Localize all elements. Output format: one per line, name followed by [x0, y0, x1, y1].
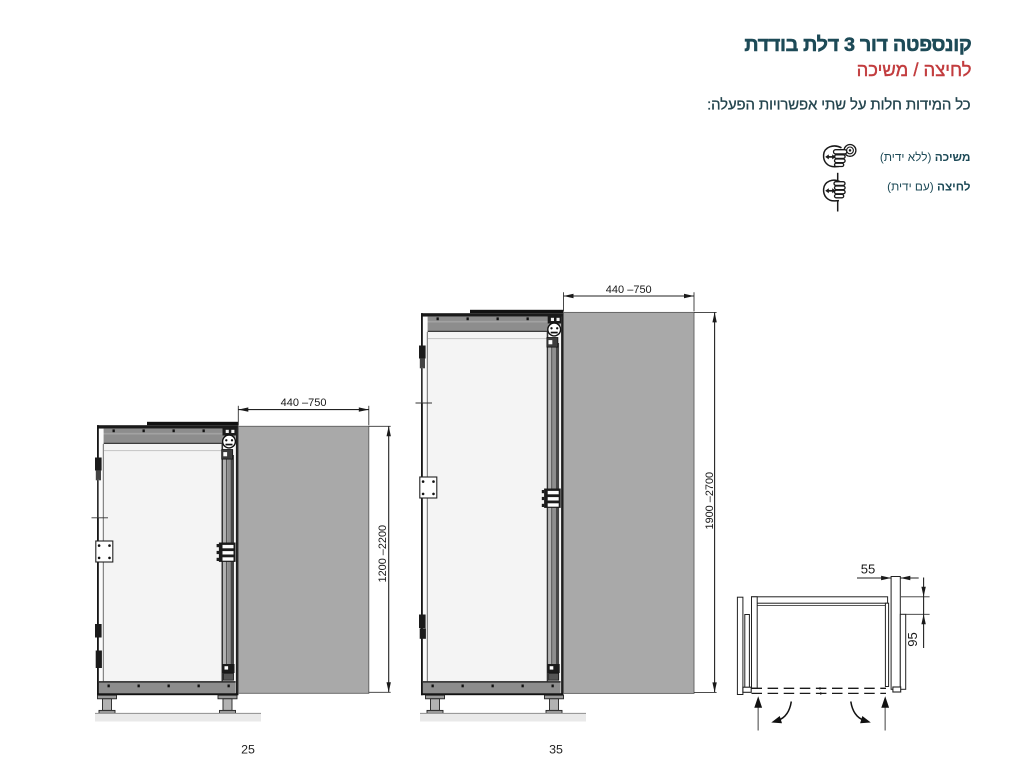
svg-text:440 –750: 440 –750	[281, 397, 327, 409]
svg-text:55: 55	[861, 562, 876, 577]
svg-text:1900 –2700: 1900 –2700	[704, 472, 716, 530]
svg-text:25: 25	[241, 743, 255, 757]
svg-text:קונספטה דור 3 דלת בודדת: קונספטה דור 3 דלת בודדת	[744, 34, 971, 56]
svg-text:35: 35	[549, 743, 563, 757]
svg-text:משיכה (ללא ידית): משיכה (ללא ידית)	[880, 150, 971, 164]
svg-text:לחיצה (עם ידית): לחיצה (עם ידית)	[887, 179, 971, 193]
svg-text:לחיצה / משיכה: לחיצה / משיכה	[857, 59, 972, 80]
svg-text:כל המידות חלות על שתי אפשרויות: כל המידות חלות על שתי אפשרויות הפעלה:	[707, 97, 970, 114]
svg-text:95: 95	[905, 632, 920, 647]
svg-text:1200 –2200: 1200 –2200	[377, 525, 389, 583]
svg-text:440 –750: 440 –750	[606, 284, 652, 296]
